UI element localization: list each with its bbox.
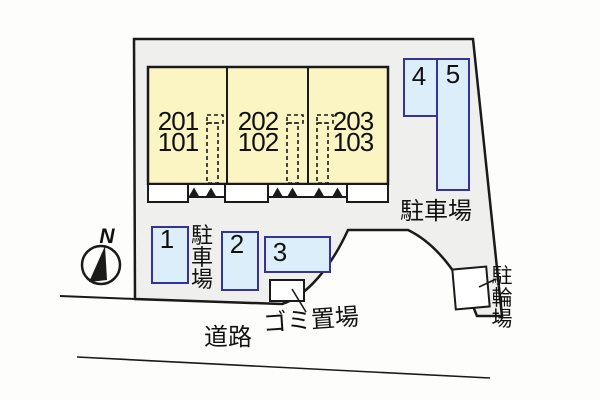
walkway — [347, 184, 388, 202]
svg-text:駐: 駐 — [492, 265, 513, 288]
building: 201 101 202 102 203 103 — [148, 67, 388, 202]
unit-label-lower: 101 — [158, 127, 199, 157]
north-label: N — [99, 225, 115, 248]
parking-space-number: 1 — [160, 224, 174, 254]
parking-space-number: 4 — [412, 61, 426, 91]
parking-area-label-right: 駐車場 — [400, 198, 472, 225]
parking-area-label-left: 駐 車 場 — [191, 223, 213, 292]
bicycle-parking-box — [452, 267, 489, 310]
parking-space-number: 5 — [446, 59, 460, 89]
parking-space-number: 2 — [230, 229, 244, 259]
site-plan-diagram: 201 101 202 102 203 103 1 2 3 4 5 駐車場 駐 … — [0, 0, 600, 400]
svg-text:場: 場 — [191, 267, 213, 292]
walkway — [225, 184, 268, 202]
road-label: 道路 — [204, 324, 252, 351]
svg-text:場: 場 — [492, 308, 513, 331]
bicycle-parking-label: 駐 輪 場 — [492, 265, 513, 331]
parking-space-number: 3 — [273, 237, 287, 267]
unit-label-lower: 102 — [238, 127, 279, 157]
svg-text:輪: 輪 — [492, 287, 513, 310]
site-plan-canvas: 201 101 202 102 203 103 1 2 3 4 5 駐車場 駐 … — [0, 0, 600, 400]
walkway — [148, 184, 188, 202]
unit-label-lower: 103 — [333, 127, 374, 157]
garbage-box — [270, 280, 304, 301]
